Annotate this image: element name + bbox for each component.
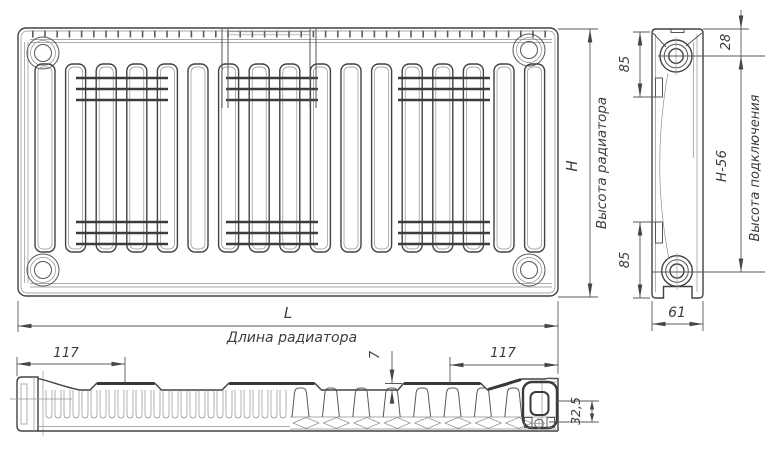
radiator-technical-drawing: H Высота радиатора L Длина радиатора 85 … [0,0,776,452]
dim-connection-height: H-56 [714,150,730,182]
dimension-height: H Высота радиатора [558,29,610,297]
side-view [652,29,703,298]
corner-plug-bottom-right [513,254,545,286]
left-end-cap [17,377,38,431]
convection-fins-left [46,390,286,418]
dimension-length: L Длина радиатора [18,301,558,374]
dim-length-symbol: L [284,304,292,322]
dim-right-margin: 117 [490,345,516,361]
channel-hump-tops [97,380,521,390]
dim-length-caption: Длина радиатора [226,330,357,346]
drawing-canvas: H Высота радиатора L Длина радиатора 85 … [0,0,776,452]
dim-height-caption: Высота радиатора [594,97,610,229]
corner-plug-bottom-left [27,254,59,286]
dim-connection-caption: Высота подключения [748,94,763,241]
dim-height-symbol: H [563,160,581,171]
dimension-right-margin: 117 [450,345,558,383]
dim-top-offset: 28 [719,34,734,51]
dimension-bracket-top: 85 [618,32,656,97]
corner-plug-top-right [513,34,545,66]
dimension-bracket-bottom: 85 [618,222,656,298]
bracket-slot-top [656,78,663,97]
dim-bracket-bottom: 85 [618,252,633,269]
dim-fin-height: 7 [368,350,383,359]
right-end-bracket [523,379,558,432]
dimension-connection: 28 H-56 Высота подключения [652,10,765,272]
dim-bracket-top: 85 [618,56,633,73]
water-channels-right [292,388,522,417]
bottom-view [10,371,558,436]
front-view [18,28,558,296]
bottom-connection-port [662,253,693,290]
panel-profile-curve [660,73,669,259]
bracket-slot-bottom [656,222,663,243]
dim-left-margin: 117 [53,345,79,361]
dim-depth: 61 [668,305,686,321]
front-panel-ribs [35,64,545,252]
dimension-depth: 61 [652,301,703,331]
dim-axis-offset: 32,5 [568,397,583,425]
diamond-band [293,418,532,429]
